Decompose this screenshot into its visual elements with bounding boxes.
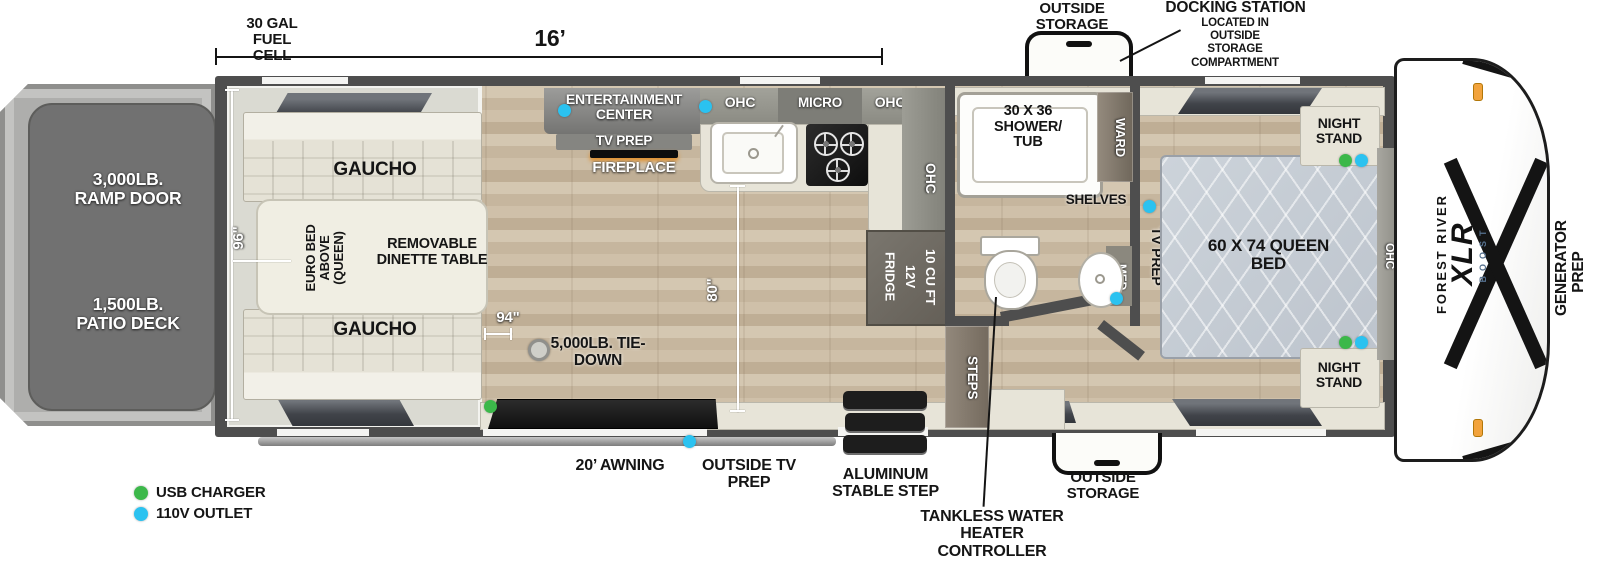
wall-cutout <box>483 429 707 436</box>
night-stand-top-label: NIGHT STAND <box>1308 116 1370 146</box>
length-dim-tick-right <box>881 48 883 65</box>
legend-usb-dot <box>134 486 148 500</box>
legend-outlet-label: 110V OUTLET <box>156 506 276 522</box>
outlet-dot <box>1355 336 1368 349</box>
ohc-tall-label: OHC <box>910 148 938 208</box>
living-bottom-window <box>488 399 718 429</box>
tankless-label: TANKLESS WATER HEATER CONTROLLER <box>912 508 1072 560</box>
dim-96-label: 96" <box>231 216 249 260</box>
outlet-dot <box>558 104 571 117</box>
sink-drain <box>748 148 759 159</box>
garage-bottom-window <box>276 396 414 426</box>
legend-outlet-dot <box>134 507 148 521</box>
toilet-bowl-inner <box>994 262 1026 298</box>
dim-94-cap-left <box>484 328 486 340</box>
patio-deck-label: 1,500LB. PATIO DECK <box>73 295 183 333</box>
entry-step <box>845 413 925 431</box>
ramp-door-label: 3,000LB. RAMP DOOR <box>73 170 183 208</box>
outlet-dot <box>1355 154 1368 167</box>
bath-wall-left <box>945 86 955 320</box>
refrigerator-label: 10 CU FT 12V FRIDGE <box>874 238 940 316</box>
floorplan: 30 GAL FUEL CELL 16’ OUTSIDE STORAGE DOC… <box>0 0 1600 571</box>
outside-storage-top-compartment <box>1025 31 1133 82</box>
entry-step <box>843 391 927 409</box>
burner <box>826 158 850 182</box>
queen-bed-label: 60 X 74 QUEEN BED <box>1196 237 1341 274</box>
refrigerator: 10 CU FT 12V FRIDGE <box>866 230 952 326</box>
dim-80-cap-top <box>730 185 745 187</box>
shower-tub-label: 30 X 36 SHOWER/ TUB <box>985 104 1071 151</box>
dim-96-cap-top <box>225 89 239 91</box>
usb-charger-dot <box>1339 154 1352 167</box>
shelves-label: SHELVES <box>1052 193 1140 208</box>
outside-tv-prep-label: OUTSIDE TV PREP <box>690 457 808 492</box>
compartment-handle <box>1066 41 1092 47</box>
entry-platform <box>989 389 1065 430</box>
cooktop <box>806 124 868 186</box>
outlet-dot <box>1143 200 1156 213</box>
dim-94-cap-right <box>510 328 512 340</box>
interior-steps: STEPS <box>945 326 989 428</box>
awning-label: 20’ AWNING <box>555 457 685 474</box>
length-dimension-line <box>216 56 883 58</box>
wardrobe: WARD <box>1097 92 1133 182</box>
night-stand-bottom-label: NIGHT STAND <box>1308 360 1370 390</box>
dim-80-cap-bottom <box>730 410 745 412</box>
microwave-label: MICRO <box>784 96 856 111</box>
outlet-dot <box>683 435 696 448</box>
patio-deck-panel <box>28 103 216 411</box>
gaucho-top-label: GAUCHO <box>330 160 420 181</box>
outside-storage-bottom-label: OUTSIDE STORAGE <box>1057 470 1149 502</box>
dim-80-label: 80" <box>705 268 723 312</box>
compartment-handle <box>1094 460 1120 466</box>
clearance-light <box>1473 419 1483 437</box>
brand-sub: BOOST <box>1478 174 1488 334</box>
docking-station-subtext: LOCATED IN OUTSIDE STORAGE COMPARTMENT <box>1185 17 1285 70</box>
wall-cutout <box>1196 429 1326 436</box>
entry-step <box>843 435 927 453</box>
fireplace-label: FIREPLACE <box>578 160 690 176</box>
outlet-dot <box>1110 292 1123 305</box>
gaucho-sofa-top <box>243 112 482 202</box>
legend-usb-label: USB CHARGER <box>156 485 276 501</box>
dim-94-label: 94" <box>484 310 532 326</box>
brand-model: XLR <box>1449 174 1478 334</box>
dim-96-cap-bottom <box>225 419 239 421</box>
usb-charger-dot <box>1339 336 1352 349</box>
outside-storage-top-label: OUTSIDE STORAGE <box>1027 1 1117 33</box>
docking-station-title: DOCKING STATION <box>1148 0 1323 17</box>
euro-bed-label: EURO BED ABOVE (QUEEN) <box>304 216 364 300</box>
bath-sink-drain <box>1095 274 1105 284</box>
length-dim-tick-left <box>215 48 217 65</box>
dim-94-line <box>484 333 512 335</box>
fireplace <box>590 150 678 158</box>
ohc-left-label: OHC <box>712 95 768 110</box>
stable-step-label: ALUMINUM STABLE STEP <box>818 466 953 501</box>
burner <box>840 132 864 156</box>
dim-96-mid-tick <box>233 260 291 262</box>
front-cap: FOREST RIVER XLR BOOST <box>1394 58 1550 462</box>
steps-label: STEPS <box>955 340 979 416</box>
wall-cutout <box>277 429 369 436</box>
entry-steps <box>843 391 927 461</box>
wall-cutout <box>740 77 820 84</box>
wall-cutout <box>262 77 348 84</box>
bath-wall-stub <box>945 316 1009 326</box>
tv-prep-label: TV PREP <box>566 134 682 149</box>
tie-down-icon <box>528 339 550 361</box>
generator-prep-label: GENERATOR PREP <box>1554 228 1600 316</box>
tie-down-label: 5,000LB. TIE-DOWN <box>550 336 646 369</box>
entertainment-center-label: ENTERTAINMENT CENTER <box>554 92 694 122</box>
brand-logo: FOREST RIVER XLR BOOST <box>1434 174 1500 334</box>
usb-charger-dot <box>484 400 497 413</box>
dinette-label: REMOVABLE DINETTE TABLE <box>376 237 488 268</box>
awning-bar <box>258 437 836 446</box>
dim-80-line <box>737 186 739 412</box>
burner <box>814 132 838 156</box>
outlet-dot <box>699 100 712 113</box>
gaucho-bottom-label: GAUCHO <box>330 320 420 341</box>
wardrobe-label: WARD <box>1105 102 1127 172</box>
wall-cutout <box>1205 77 1300 84</box>
length-label: 16’ <box>505 26 595 51</box>
clearance-light <box>1473 83 1483 101</box>
